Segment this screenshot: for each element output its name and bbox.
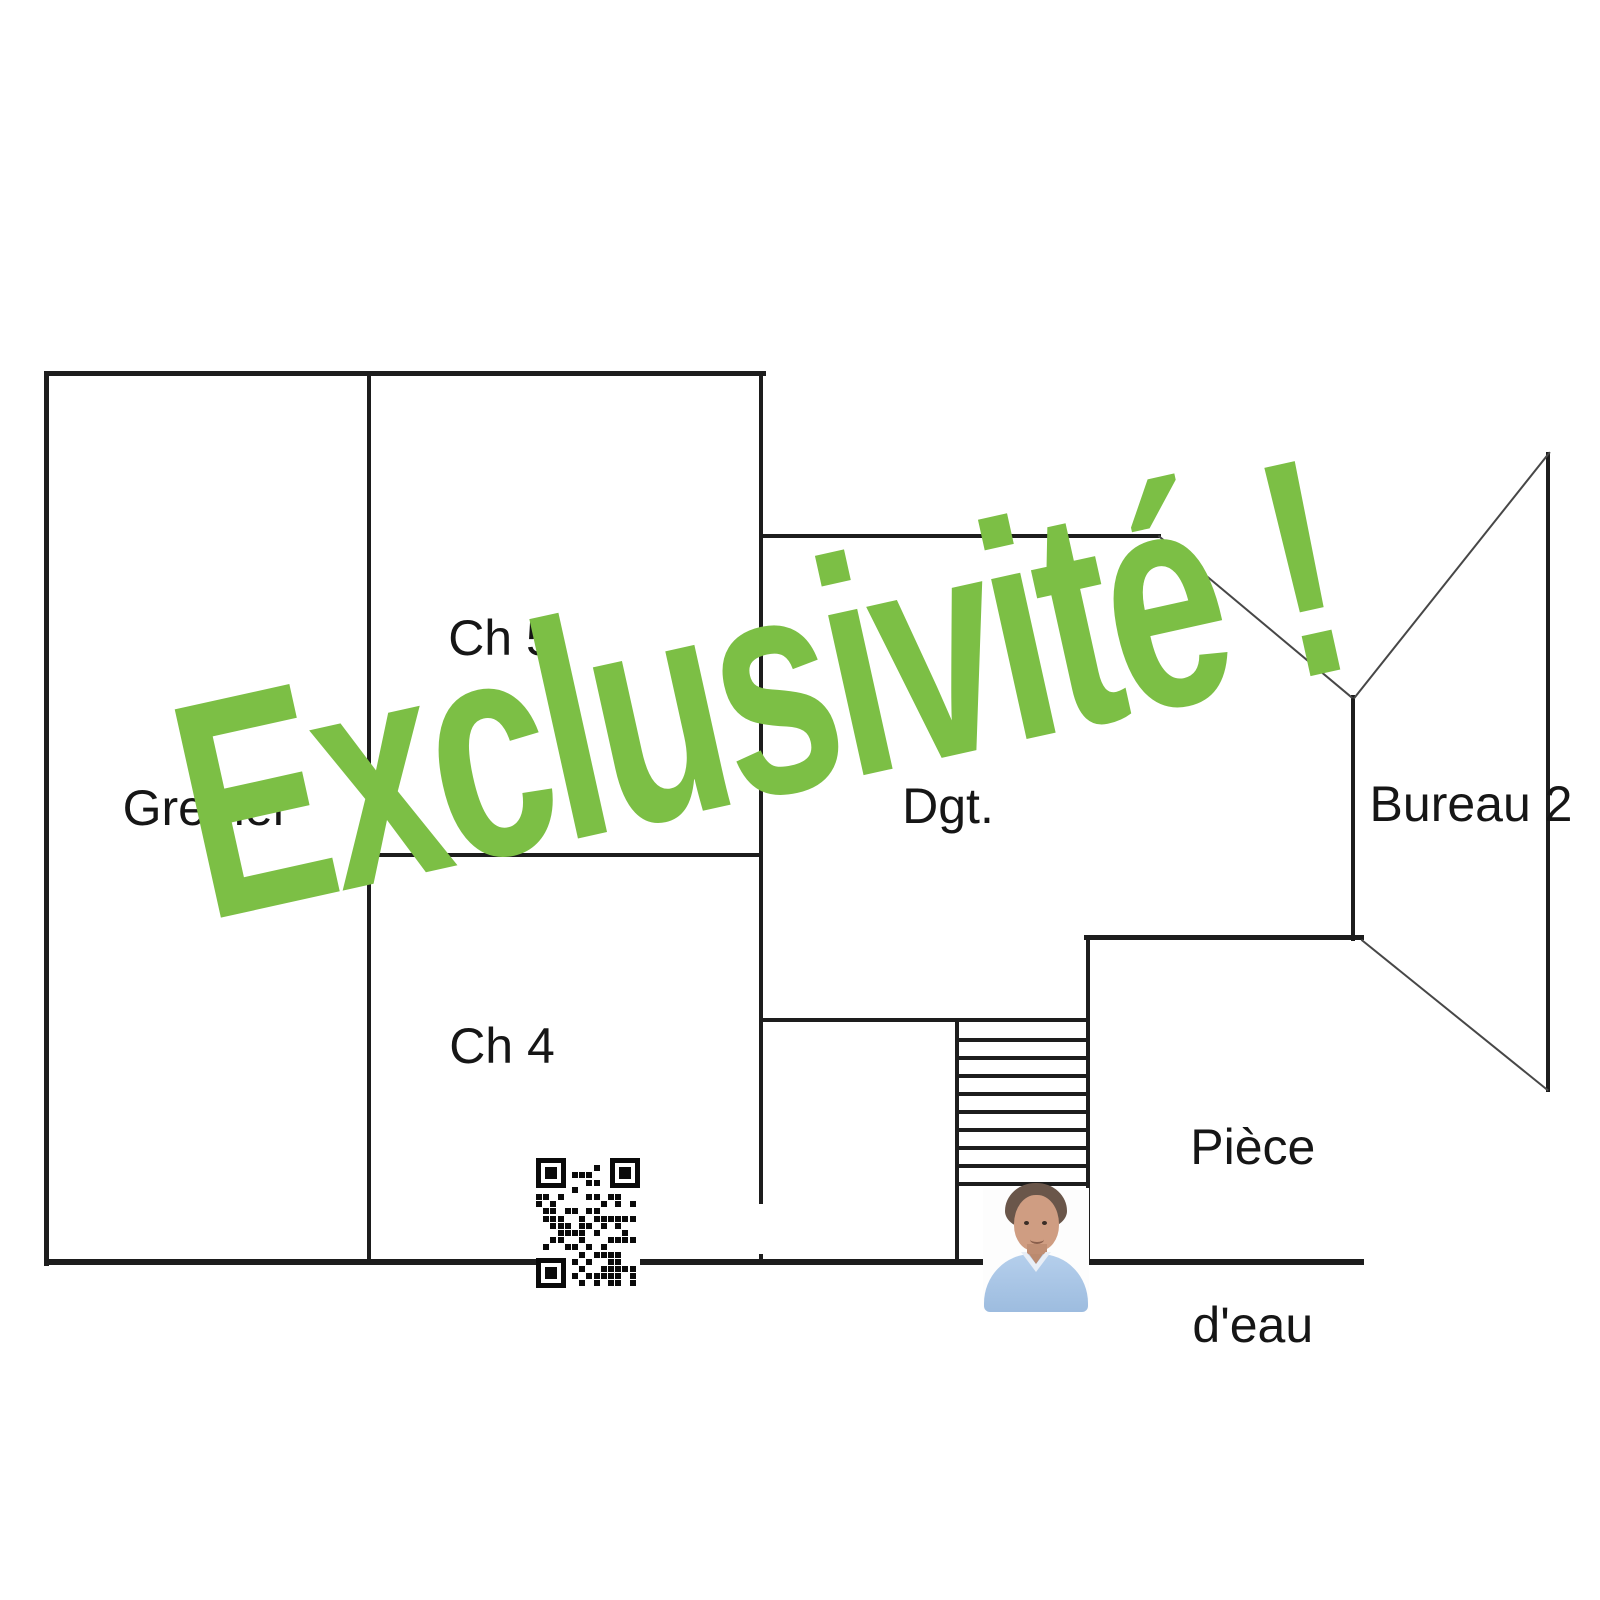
wall-diagonal-upper-right	[1353, 451, 1551, 699]
stair-tread	[955, 1164, 1090, 1168]
qr-finder-bottom-left-icon	[536, 1258, 566, 1288]
wall-outer-top	[44, 371, 766, 376]
room-label-bureau2: Bureau 2	[1321, 779, 1600, 829]
wall-piece-eau-top	[1084, 935, 1364, 940]
agent-face	[1014, 1195, 1059, 1251]
wall-diagonal-lower-right	[1361, 939, 1549, 1091]
stair-tread	[955, 1146, 1090, 1150]
room-label-piece-eau-line1: Pièce	[1190, 1119, 1315, 1175]
room-label-ch4: Ch 4	[402, 1021, 602, 1071]
qr-finder-top-right-icon	[610, 1158, 640, 1188]
stair-tread	[955, 1110, 1090, 1114]
agent-smile-icon	[1030, 1235, 1044, 1244]
wall-right-outer	[1546, 452, 1550, 1092]
wall-outer-left	[44, 371, 49, 1266]
stair-tread	[955, 1092, 1090, 1096]
floor-plan: Grenier Ch 5 Ch 4 Dgt. Bureau 2 Pièce d'…	[0, 0, 1600, 1600]
agent-photo	[983, 1188, 1089, 1310]
agent-shirt	[984, 1254, 1088, 1312]
wall-landing-top	[759, 1018, 1090, 1022]
room-label-piece-eau: Pièce d'eau	[1125, 1014, 1325, 1459]
exclusivite-watermark: Exclusivité !	[150, 411, 1365, 968]
wall-opening	[757, 1204, 766, 1254]
agent-eye-left-icon	[1024, 1221, 1029, 1225]
stair-tread	[955, 1074, 1090, 1078]
room-label-piece-eau-line2: d'eau	[1192, 1297, 1313, 1353]
qr-code	[536, 1158, 640, 1288]
stair-tread	[955, 1038, 1090, 1042]
stair-tread	[955, 1128, 1090, 1132]
qr-finder-top-left-icon	[536, 1158, 566, 1188]
agent-eye-right-icon	[1042, 1221, 1047, 1225]
stair-tread	[955, 1056, 1090, 1060]
